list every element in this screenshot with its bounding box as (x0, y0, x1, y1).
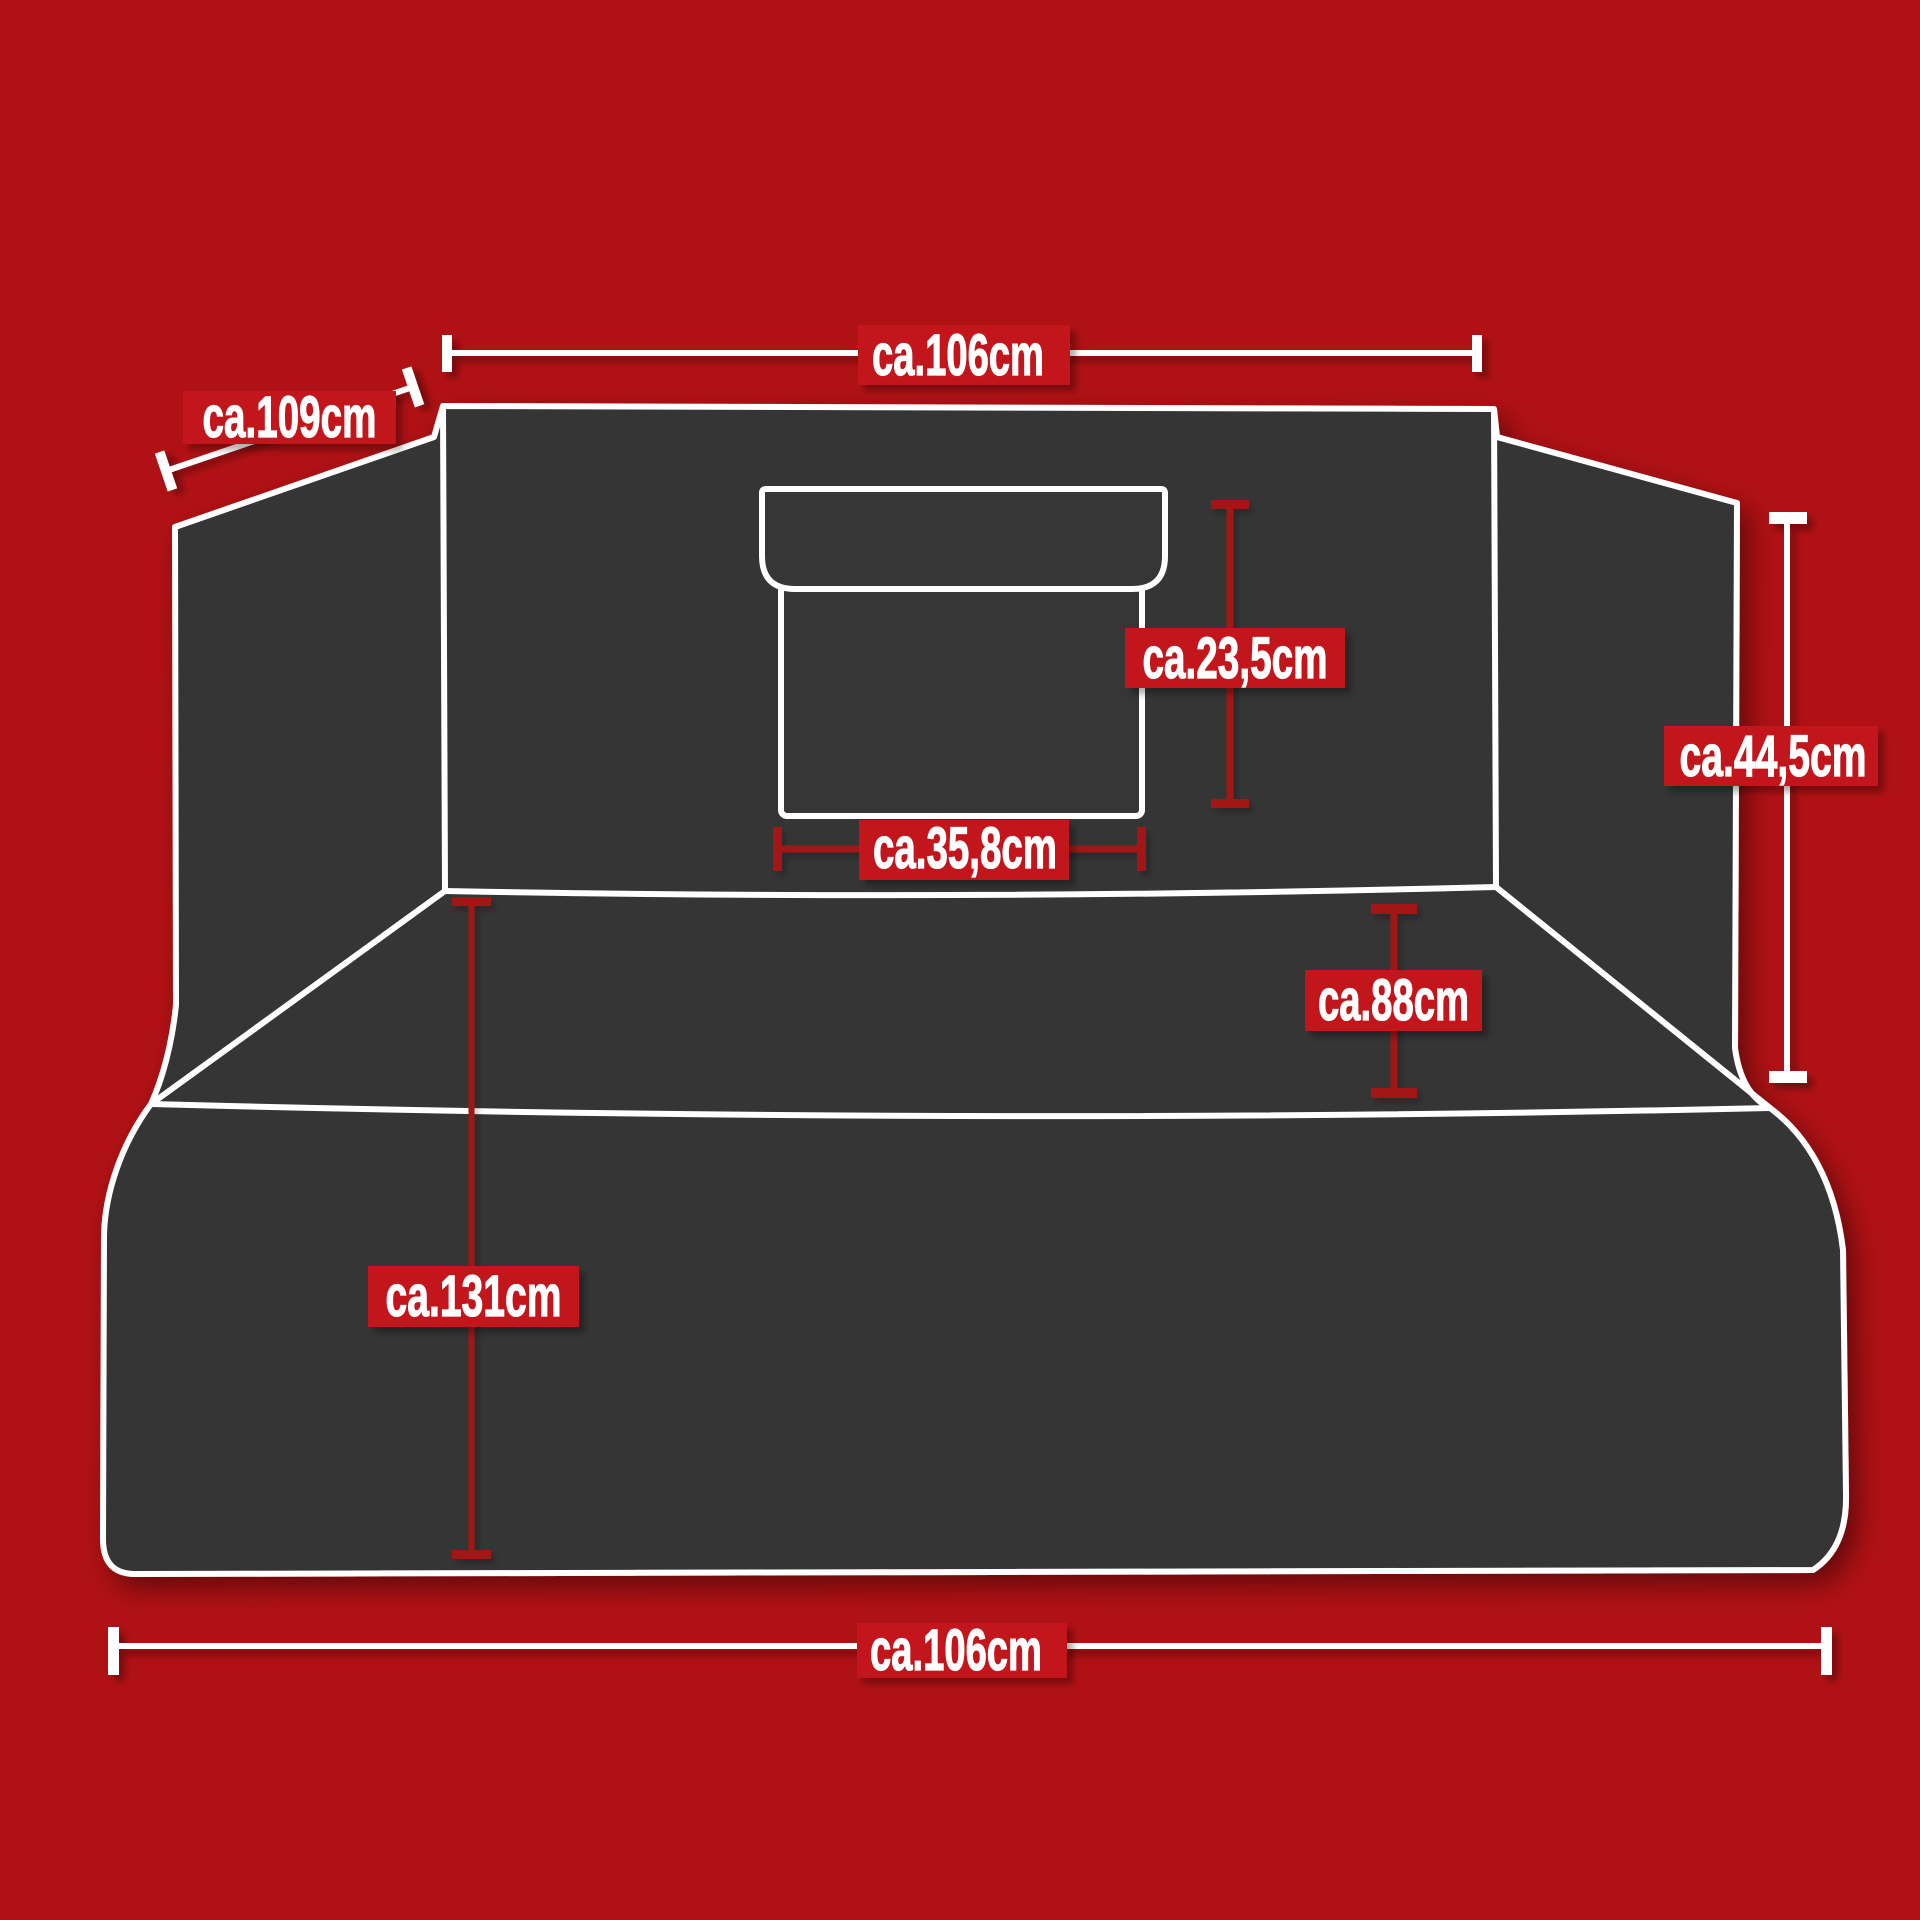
svg-text:ca.88cm: ca.88cm (1318, 968, 1469, 1033)
svg-text:ca.23,5cm: ca.23,5cm (1143, 626, 1328, 691)
svg-text:ca.131cm: ca.131cm (386, 1264, 562, 1329)
svg-text:ca.109cm: ca.109cm (203, 385, 377, 450)
svg-text:ca.106cm: ca.106cm (872, 323, 1044, 388)
svg-text:ca.106cm: ca.106cm (870, 1618, 1042, 1683)
svg-text:ca.35,8cm: ca.35,8cm (873, 816, 1057, 881)
svg-text:ca.44,5cm: ca.44,5cm (1680, 724, 1867, 789)
